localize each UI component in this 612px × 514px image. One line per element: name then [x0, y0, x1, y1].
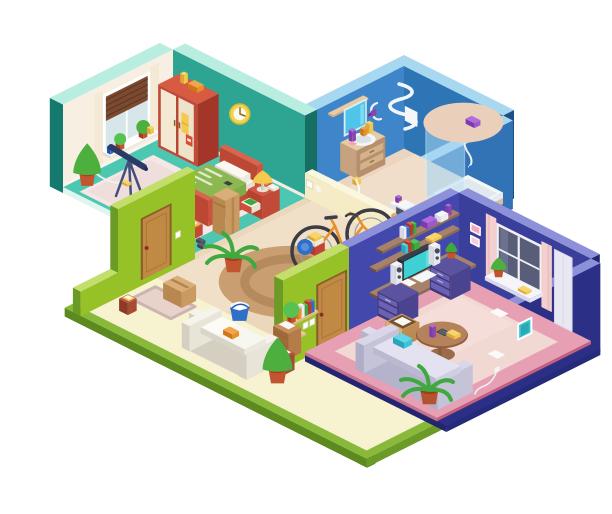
shampoo-bottle-purple [349, 128, 356, 142]
wardrobe-trim [176, 96, 178, 154]
tall-cardboard-box [213, 188, 240, 238]
sink-basin-inner [354, 135, 371, 143]
bicycle-blue-roll-inner [301, 243, 309, 251]
shelf-book-teal [401, 243, 408, 254]
speaker-left [428, 242, 440, 266]
shampoo-bottle-orange [360, 126, 367, 136]
speaker-right [390, 261, 402, 285]
isometric-apartment-scene [0, 0, 612, 514]
shower-top-shelf [423, 103, 503, 143]
speaker-cone [436, 256, 439, 259]
wardrobe-top-bottle [180, 72, 188, 85]
bucket-water [235, 302, 244, 311]
telescope-eyepiece [144, 167, 148, 171]
shelf-plant-ball [283, 302, 299, 318]
illustration-stage [0, 0, 612, 514]
sill-bottle-yellow [147, 126, 154, 135]
speaker-cone [398, 275, 401, 278]
wardrobe-handle [174, 120, 176, 127]
shelf-book-white [399, 225, 406, 239]
white-closet-seam [563, 256, 564, 326]
curtain-right-fold [547, 244, 549, 311]
curtain-left-fold [488, 214, 490, 281]
wardrobe-handle [179, 122, 181, 129]
mirror-glint [360, 104, 363, 125]
window-mullion [126, 110, 128, 140]
door-living-handle [320, 313, 324, 317]
box-tape [232, 197, 234, 235]
curtain-right [541, 241, 551, 312]
door-entry-handle [145, 246, 149, 250]
speaker-cone [397, 267, 402, 272]
sill-plant [114, 133, 126, 145]
bicycle-seat [326, 217, 336, 218]
table-bottle-purple [429, 324, 436, 338]
speaker-cone [435, 248, 440, 253]
apartment-cutaway-figure [0, 0, 612, 514]
shower-valve [469, 166, 474, 171]
